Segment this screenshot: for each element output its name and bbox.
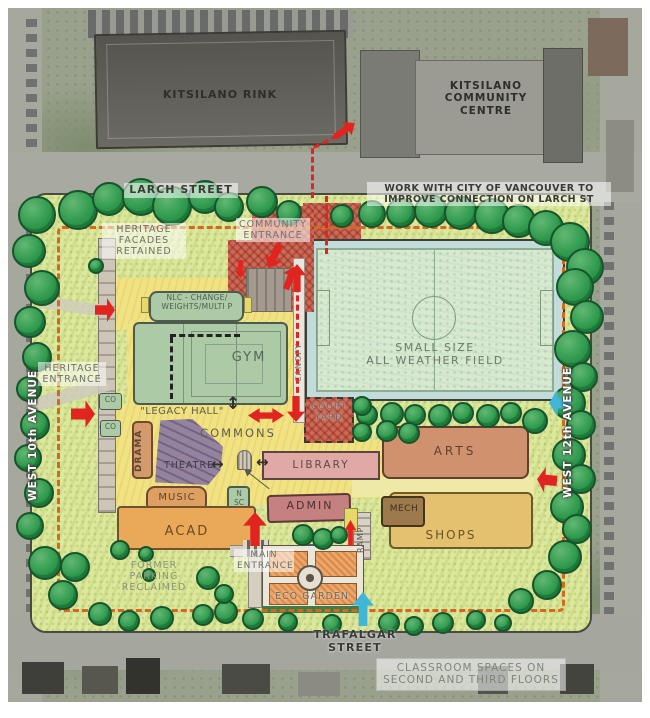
tree-icon [292, 524, 314, 546]
gym-label: GYM [222, 350, 276, 365]
heritage-entrance-line: ENTRANCE [41, 374, 103, 385]
nlc-label-line: WEIGHTS/MULTI P [151, 303, 243, 312]
heritage-facades-line: RETAINED [105, 246, 183, 257]
co-lower-label: CO [100, 423, 121, 432]
neighbourhood-building [22, 662, 64, 694]
main-entrance-line: MAIN [237, 550, 291, 561]
community-centre-label-line: KITSILANO [430, 80, 542, 92]
arts-label: ARTS [400, 444, 510, 458]
red-arrow-heritage-gate-down [234, 260, 247, 278]
tree-icon [452, 402, 474, 424]
west-10th-label: WEST 10th AVENUE [27, 350, 43, 520]
community-centre-east-wing [543, 48, 583, 163]
tree-icon [242, 608, 264, 630]
canopy-label: CANOPY [294, 334, 305, 392]
red-arrow-nlc-entry [95, 297, 115, 323]
tree-icon [548, 540, 582, 574]
larch-note: WORK WITH CITY OF VANCOUVER TO IMPROVE C… [367, 182, 611, 206]
tree-icon [192, 604, 214, 626]
tree-icon [570, 300, 604, 334]
community-entrance-line: ENTRANCE [239, 230, 307, 241]
tree-icon [110, 540, 130, 560]
tree-icon [352, 422, 372, 442]
two-way-vertical-arrow-icon: ↕ [226, 396, 240, 413]
tree-icon [88, 602, 112, 626]
main-entrance-label: MAIN ENTRANCE [234, 549, 294, 572]
tree-icon [532, 570, 562, 600]
tree-icon [522, 408, 548, 434]
classroom-note-line: SECOND AND THIRD FLOORS [379, 674, 563, 686]
tree-icon [398, 422, 420, 444]
red-arrow-canopy-north [287, 264, 307, 292]
tree-icon [92, 182, 126, 216]
field-label: SMALL SIZE ALL WEATHER FIELD [320, 342, 550, 368]
former-parking-line: PARKING [116, 571, 192, 582]
legacy-hall-label: "LEGACY HALL" [136, 406, 228, 418]
community-centre-label-line: COMMUNITY [430, 92, 542, 104]
larch-street-label: LARCH STREET [124, 183, 238, 198]
tree-icon [352, 396, 372, 416]
tree-icon [428, 404, 452, 428]
classroom-note-line: CLASSROOM SPACES ON [379, 662, 563, 674]
nsc-label: N SC [228, 490, 250, 508]
ramp-label: RAMP [356, 520, 368, 560]
theatre-label: THEATRE [158, 460, 220, 471]
heritage-facades-line: HERITAGE [105, 224, 183, 235]
red-arrow-west12-entry [536, 465, 558, 495]
tree-icon [48, 580, 78, 610]
tree-icon [330, 204, 354, 228]
community-centre-label-line: CENTRE [430, 105, 542, 117]
tree-icon [18, 196, 56, 234]
neighbourhood-building [82, 666, 118, 694]
tree-icon [494, 614, 512, 632]
courtyard-label-line: YARD [306, 413, 352, 424]
community-centre-west-wing [360, 50, 420, 158]
community-route-dashed [325, 196, 328, 254]
red-arrow-canopy-south [286, 396, 306, 422]
tree-icon [376, 420, 398, 442]
trafalgar-street-label: TRAFALGAR STREET [288, 629, 422, 655]
heritage-entrance-label: HERITAGE ENTRANCE [38, 362, 106, 386]
drama-label: DRAMA [134, 427, 151, 475]
site-plan-canvas: ↕ ↔ ↔ KITSILANO RINK KITSILANO COMMUNITY… [0, 0, 650, 718]
neighbourhood-building [126, 658, 160, 694]
tree-icon [150, 606, 174, 630]
tree-icon [500, 402, 522, 424]
tree-icon [14, 306, 46, 338]
community-entrance-line: COMMUNITY [239, 219, 307, 230]
elevator-icon [237, 450, 252, 470]
former-parking-line: RECLAIMED [116, 582, 192, 593]
former-parking-line: FORMER [116, 560, 192, 571]
former-parking-note: FORMER PARKING RECLAIMED [116, 560, 192, 594]
tree-icon [12, 234, 46, 268]
heritage-facades-line: FACADES [105, 235, 183, 246]
admin-label: ADMIN [272, 500, 348, 513]
commons-label: COMMONS [196, 427, 280, 441]
rink-label: KITSILANO RINK [150, 89, 290, 102]
tree-icon [28, 546, 62, 580]
library-label: LIBRARY [266, 459, 376, 471]
courtyard-label: COURT YARD [306, 402, 352, 423]
acad-label: ACAD [146, 524, 228, 539]
mech-label: MECH [384, 504, 424, 515]
tree-icon [60, 552, 90, 582]
neighbourhood-building [588, 18, 628, 76]
tree-icon [118, 610, 140, 632]
community-centre-label: KITSILANO COMMUNITY CENTRE [430, 80, 542, 117]
parked-cars-east [604, 200, 614, 660]
tree-icon [432, 612, 454, 634]
nlc-label: NLC - CHANGE/ WEIGHTS/MULTI P [151, 294, 243, 312]
tree-icon [88, 258, 104, 274]
tree-icon [466, 610, 486, 630]
music-label: MUSIC [148, 492, 206, 504]
neighbourhood-building [298, 672, 340, 696]
larch-note-line: IMPROVE CONNECTION ON LARCH ST [370, 194, 608, 205]
tree-icon [24, 270, 60, 306]
eco-garden-label: ECO GARDEN [264, 591, 360, 602]
co-upper-label: CO [99, 396, 122, 405]
classroom-note: CLASSROOM SPACES ON SECOND AND THIRD FLO… [376, 658, 566, 691]
tree-icon [508, 588, 534, 614]
neighbourhood-building [222, 664, 270, 694]
heritage-entrance-line: HERITAGE [41, 363, 103, 374]
larch-route-dashed [311, 148, 314, 198]
heritage-facades-note: HERITAGE FACADES RETAINED [102, 223, 186, 259]
red-arrow-main-entrance [242, 512, 268, 546]
red-arrow-heritage-entrance [71, 399, 95, 429]
nsc-label-line: SC [228, 499, 250, 508]
community-entrance-label: COMMUNITY ENTRANCE [236, 218, 310, 242]
larch-note-line: WORK WITH CITY OF VANCOUVER TO [370, 183, 608, 194]
tree-icon [476, 404, 500, 428]
field-label-line: ALL WEATHER FIELD [320, 355, 550, 368]
red-arrow-courtyard-twoway [248, 407, 284, 424]
shops-label: SHOPS [408, 528, 494, 542]
tree-icon [246, 186, 278, 218]
courtyard-label-line: COURT [306, 402, 352, 413]
main-entrance-line: ENTRANCE [237, 561, 291, 572]
tree-icon [214, 584, 234, 604]
west-12th-label: WEST 12th AVENUE [562, 345, 578, 520]
